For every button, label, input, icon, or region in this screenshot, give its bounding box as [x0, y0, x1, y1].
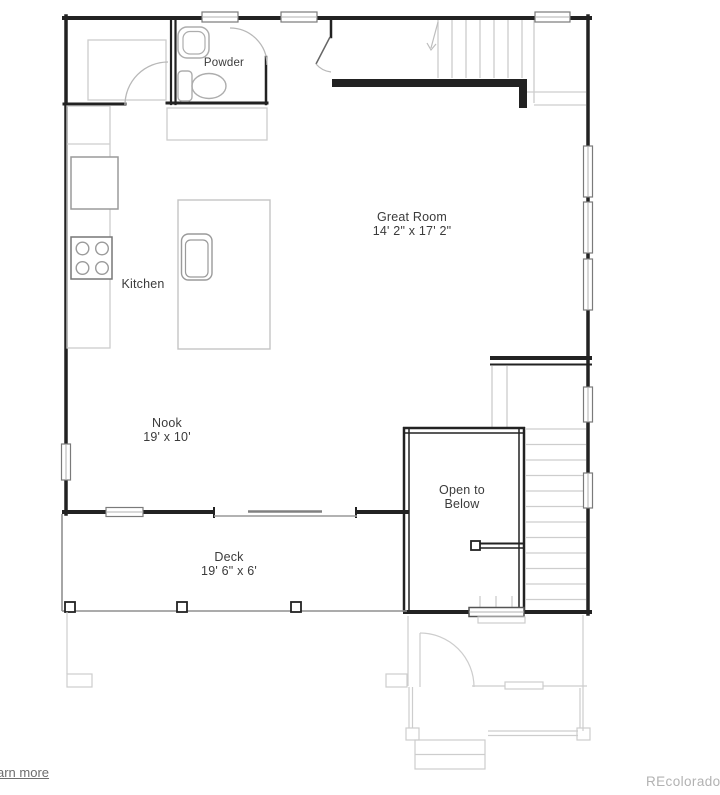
pantry-door-arc	[125, 62, 168, 105]
window	[535, 12, 570, 22]
stairs-down-halfwall	[490, 358, 592, 365]
window	[584, 387, 593, 422]
stairs-down	[480, 366, 586, 610]
kitchen-label: Kitchen	[121, 277, 164, 291]
open-to-below-walls	[403, 427, 525, 612]
window	[62, 444, 71, 480]
floor-plan-drawing	[0, 0, 720, 795]
nook-name: Nook	[143, 416, 191, 430]
porch-entry-door	[420, 633, 474, 687]
powder-sink	[178, 27, 209, 58]
nook-label: Nook 19' x 10'	[143, 416, 191, 444]
stairs-up	[427, 20, 586, 105]
great-room-label: Great Room 14' 2" x 17' 2"	[373, 210, 452, 238]
exterior-walls	[64, 16, 590, 614]
stairwell-railing	[471, 541, 525, 550]
window	[202, 12, 238, 22]
window	[584, 146, 593, 197]
window	[584, 473, 593, 508]
learn-more-link[interactable]: arn more	[0, 765, 49, 780]
window	[469, 608, 524, 617]
great-room-dimensions: 14' 2" x 17' 2"	[373, 224, 452, 238]
window	[584, 202, 593, 253]
deck-label: Deck 19' 6" x 6'	[201, 550, 257, 578]
nook-dimensions: 19' x 10'	[143, 430, 191, 444]
range	[71, 237, 112, 279]
kitchen-island	[178, 200, 270, 349]
powder-room-label: Powder	[204, 56, 244, 70]
window	[281, 12, 317, 22]
stairs-upper-railing	[332, 83, 527, 108]
floor-plan-canvas: Powder Kitchen Great Room 14' 2" x 17' 2…	[0, 0, 720, 795]
sliding-door	[214, 507, 357, 517]
toilet	[178, 71, 226, 101]
refrigerator	[71, 157, 118, 209]
windows	[62, 12, 593, 617]
lower-level-outline	[67, 612, 590, 740]
deck-name: Deck	[201, 550, 257, 564]
deck-dimensions: 19' 6" x 6'	[201, 564, 257, 578]
porch-steps	[415, 740, 485, 769]
window	[584, 259, 593, 310]
closet-door	[316, 37, 331, 72]
window	[106, 508, 143, 517]
open-to-below-label: Open to Below	[430, 483, 494, 511]
recolorado-watermark: REcolorado	[646, 774, 720, 789]
great-room-name: Great Room	[373, 210, 452, 224]
